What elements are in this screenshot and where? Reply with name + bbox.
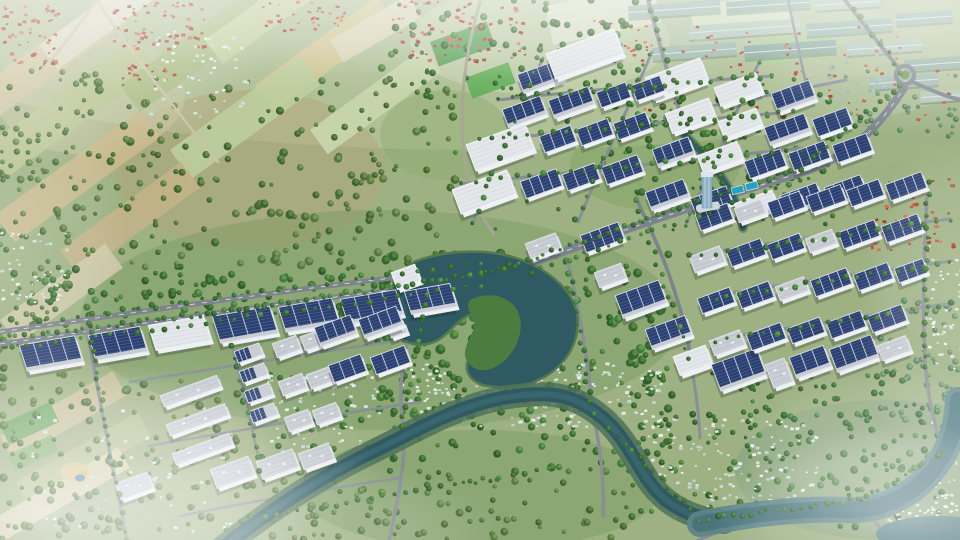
industrial-park-aerial-scene: [0, 0, 960, 540]
aerial-masterplan-render: [0, 0, 960, 540]
office-tower: [702, 176, 712, 208]
tower-roof: [701, 172, 713, 177]
